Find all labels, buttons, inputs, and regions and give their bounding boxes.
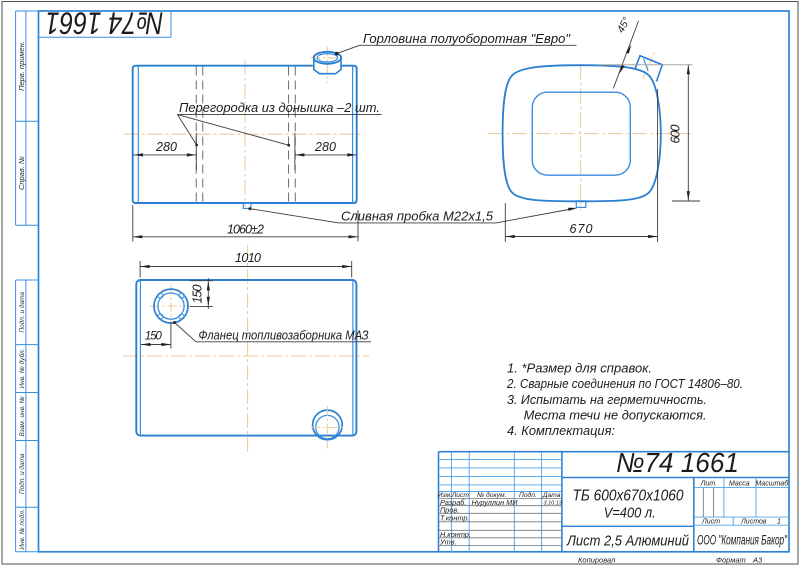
svg-text:ООО "Компания Бакор": ООО "Компания Бакор" <box>697 533 788 548</box>
svg-text:4. Комплектация:: 4. Комплектация: <box>507 423 615 438</box>
svg-text:Места течи не допускаются.: Места течи не допускаются. <box>524 407 707 422</box>
svg-text:150: 150 <box>191 284 205 303</box>
svg-text:Взам. инв. №: Взам. инв. № <box>19 396 26 436</box>
svg-text:280: 280 <box>314 140 336 154</box>
svg-text:Масса: Масса <box>729 481 750 488</box>
svg-text:Перв. примен.: Перв. примен. <box>17 41 26 91</box>
svg-text:1: 1 <box>777 519 781 526</box>
svg-text:№74 1661: №74 1661 <box>46 5 164 41</box>
svg-text:Масштаб: Масштаб <box>755 480 789 488</box>
svg-text:Подп. и дата: Подп. и дата <box>18 292 26 333</box>
svg-text:Лист: Лист <box>701 519 720 526</box>
svg-text:Листов: Листов <box>740 519 767 526</box>
svg-text:Утв.: Утв. <box>439 537 457 546</box>
svg-text:Т.контр.: Т.контр. <box>440 513 469 522</box>
svg-text:Сливная пробка М22х1,5: Сливная пробка М22х1,5 <box>341 208 494 223</box>
svg-text:Перегородка из донышка –2 шт.: Перегородка из донышка –2 шт. <box>179 100 380 115</box>
svg-text:150: 150 <box>145 331 163 343</box>
svg-text:Лит.: Лит. <box>700 481 717 488</box>
svg-text:600: 600 <box>669 124 683 143</box>
svg-text:Инв. № дубл.: Инв. № дубл. <box>18 348 26 388</box>
svg-text:2. Сварные соединения по ГОСТ: 2. Сварные соединения по ГОСТ 14806–80. <box>506 376 743 391</box>
svg-text:1060±2: 1060±2 <box>227 223 264 237</box>
svg-text:Нуруллин МИ: Нуруллин МИ <box>472 498 519 507</box>
svg-text:3.10.13: 3.10.13 <box>544 501 563 507</box>
svg-text:Дата: Дата <box>542 492 561 499</box>
svg-text:Формат: Формат <box>716 556 746 565</box>
svg-text:1010: 1010 <box>235 251 261 265</box>
svg-text:Инв. № подл.: Инв. № подл. <box>18 509 26 550</box>
svg-text:670: 670 <box>570 222 593 236</box>
svg-text:280: 280 <box>155 140 177 154</box>
svg-text:Горловина полуоборотная "Евро": Горловина полуоборотная "Евро" <box>363 31 571 46</box>
svg-text:Лист 2,5 Алюминий: Лист 2,5 Алюминий <box>566 533 689 550</box>
svg-text:№74 1661: №74 1661 <box>616 447 739 478</box>
svg-text:1. *Размер для справок.: 1. *Размер для справок. <box>507 361 652 376</box>
svg-text:Подп.: Подп. <box>519 491 537 499</box>
svg-text:ТБ 600х670х1060: ТБ 600х670х1060 <box>573 487 684 504</box>
svg-text:Справ. №: Справ. № <box>17 156 26 190</box>
svg-text:Подп. и дата: Подп. и дата <box>18 453 26 494</box>
svg-text:Фланец топливозаборника МАЗ: Фланец топливозаборника МАЗ <box>199 327 369 342</box>
svg-text:А3: А3 <box>752 556 763 565</box>
svg-text:Копировал: Копировал <box>578 556 616 565</box>
svg-text:3. Испытать на герметичность.: 3. Испытать на герметичность. <box>507 392 707 407</box>
svg-text:V=400 л.: V=400 л. <box>604 505 656 522</box>
